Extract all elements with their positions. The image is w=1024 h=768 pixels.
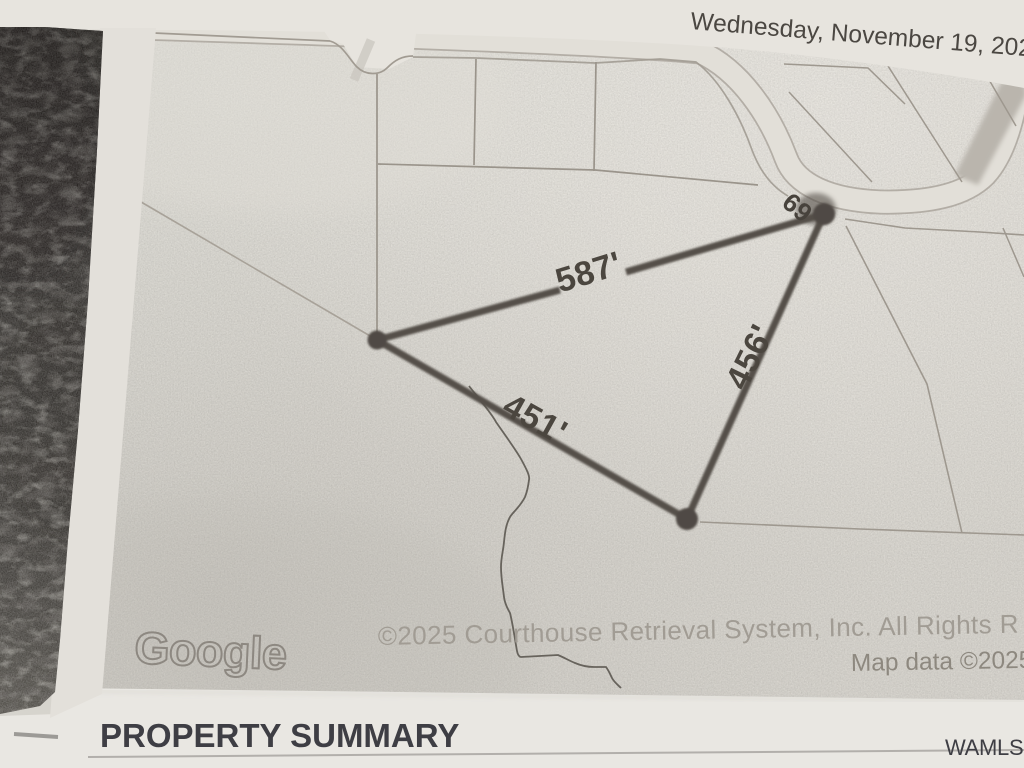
- svg-text:Google: Google: [134, 622, 288, 680]
- svg-text:Map data ©2025: Map data ©2025: [851, 647, 1024, 677]
- svg-text:PROPERTY SUMMARY: PROPERTY SUMMARY: [100, 717, 459, 754]
- svg-text:WAMLS: WAMLS: [945, 735, 1023, 760]
